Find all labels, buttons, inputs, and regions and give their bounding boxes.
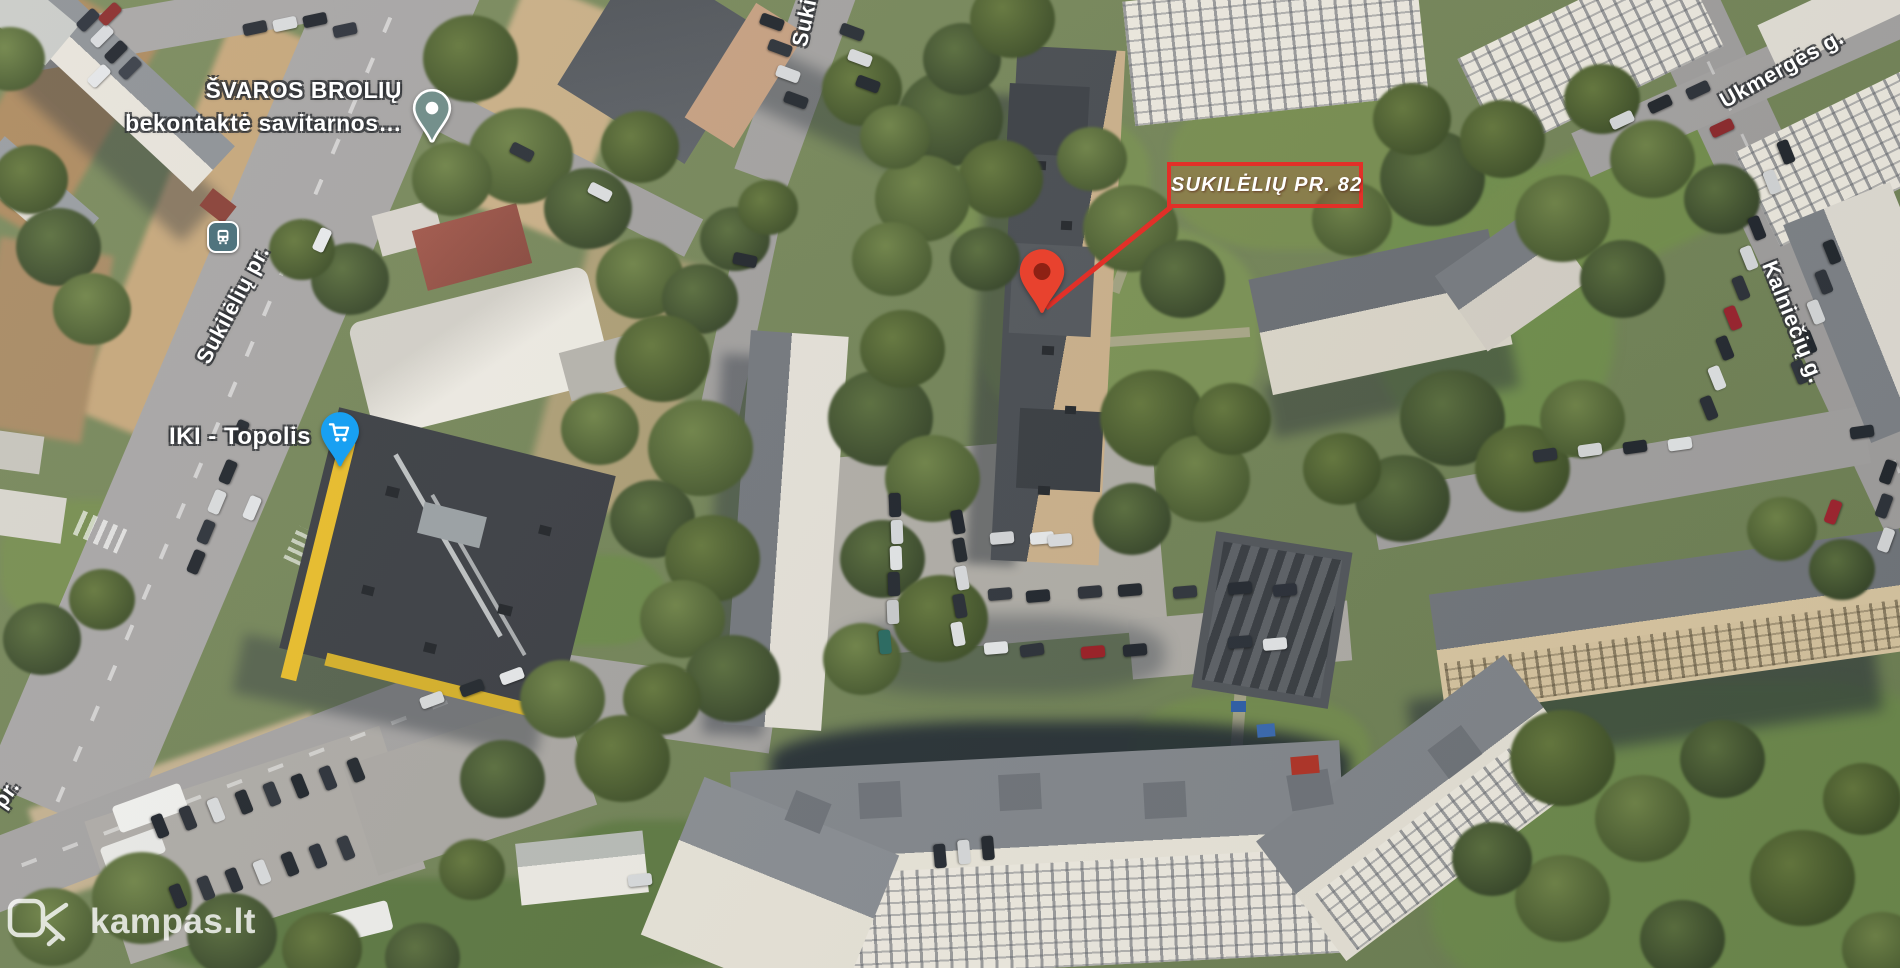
tree (1460, 100, 1545, 178)
kampas-watermark: kampas.lt (6, 896, 256, 948)
watermark-text: kampas.lt (90, 902, 256, 942)
car (933, 844, 947, 869)
tree (1809, 539, 1875, 600)
car (1273, 583, 1298, 597)
map-feature (1256, 723, 1275, 738)
car (1263, 637, 1288, 651)
tree (1750, 830, 1855, 927)
map-feature (1038, 485, 1050, 495)
map-feature (1060, 220, 1071, 230)
car (1026, 589, 1051, 603)
tree (544, 168, 632, 249)
shopping-cart-pin-icon[interactable] (317, 411, 363, 469)
marker-label-box: SUKILĖLIŲ PR. 82 (1167, 162, 1363, 208)
tree (520, 660, 605, 738)
car (878, 630, 892, 655)
car (889, 493, 902, 517)
tree (615, 315, 710, 402)
tree (53, 273, 131, 345)
map-feature (998, 773, 1042, 811)
car (981, 836, 995, 861)
tree (1823, 763, 1900, 835)
tree (460, 740, 545, 818)
place-pin-icon[interactable] (411, 89, 453, 144)
car (1228, 581, 1253, 595)
tree (950, 227, 1020, 291)
car (988, 587, 1013, 601)
tree (601, 111, 679, 183)
car (1228, 635, 1253, 649)
tree (3, 603, 81, 675)
tree (860, 310, 945, 388)
tree (69, 569, 135, 630)
map-feature (1202, 541, 1342, 698)
car (990, 531, 1015, 545)
car (891, 520, 904, 544)
car (1173, 585, 1198, 599)
marker-label-text: SUKILĖLIŲ PR. 82 (1171, 174, 1362, 196)
tree (1373, 83, 1451, 155)
tree (1610, 120, 1695, 198)
car (839, 22, 866, 41)
tree (893, 575, 988, 662)
poi-label-line1: ŠVAROS BROLIŲ (30, 74, 402, 107)
tree (1193, 383, 1271, 455)
tree (561, 393, 639, 465)
tree (1303, 433, 1381, 505)
car (887, 600, 900, 624)
tree (738, 180, 798, 235)
tree (1595, 775, 1690, 862)
map-feature (0, 488, 67, 544)
kampas-logo-icon (6, 896, 76, 948)
car (1731, 275, 1751, 302)
tree (1057, 127, 1127, 191)
tree (1680, 720, 1765, 798)
car (1723, 305, 1743, 332)
car (1699, 395, 1719, 422)
tree (852, 222, 932, 296)
map-feature (1231, 701, 1246, 712)
car (627, 873, 652, 887)
car (1078, 585, 1103, 599)
tree (860, 105, 930, 169)
tree (1640, 900, 1725, 968)
tree (439, 839, 505, 900)
car (1823, 499, 1842, 526)
tree (412, 142, 492, 216)
map-feature (858, 781, 902, 819)
red-map-pin-icon (1015, 248, 1069, 316)
bus-stop-icon[interactable] (207, 221, 239, 253)
tree (0, 145, 68, 214)
car (1123, 643, 1148, 657)
car (890, 546, 903, 570)
map-feature (0, 430, 44, 475)
car (1048, 533, 1073, 547)
map-feature (1143, 781, 1187, 819)
bus-glyph (213, 227, 233, 247)
tree (1093, 483, 1171, 555)
car (888, 572, 901, 596)
car (984, 641, 1009, 655)
poi-label-svaros-broliu: ŠVAROS BROLIŲ bekontaktė savitarnos… (30, 74, 402, 140)
map-feature (515, 830, 649, 905)
tree (1747, 497, 1817, 561)
map-feature (1064, 406, 1075, 415)
map-feature (1016, 408, 1104, 492)
map-feature (1042, 345, 1054, 355)
tree (1580, 240, 1665, 318)
car (1715, 335, 1735, 362)
car (957, 840, 971, 865)
tree (958, 140, 1043, 218)
tree (1510, 710, 1615, 807)
poi-label-line2: bekontaktė savitarnos… (30, 107, 402, 140)
car (1707, 365, 1727, 392)
map-feature (1290, 755, 1319, 775)
car (1081, 645, 1106, 659)
car (1118, 583, 1143, 597)
tree (1140, 240, 1225, 318)
map-canvas[interactable]: ŠVAROS BROLIŲ bekontaktė savitarnos… IKI… (0, 0, 1900, 968)
tree (1452, 822, 1532, 896)
